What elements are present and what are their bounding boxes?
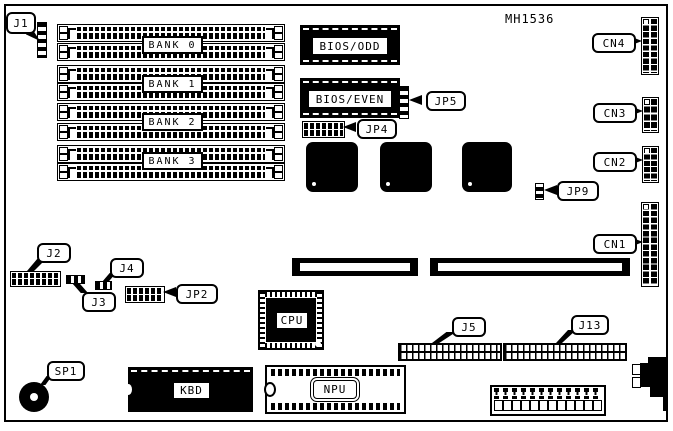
callout-cn4: CN4	[592, 33, 636, 53]
pin1-dot	[468, 182, 472, 186]
cn4-connector	[641, 17, 659, 75]
bios-even-chip: BIOS/EVEN	[300, 78, 400, 118]
cpu-label: CPU	[276, 312, 308, 329]
kbd-label: KBD	[173, 382, 210, 399]
j2-header	[10, 271, 61, 287]
slot-left	[292, 258, 418, 276]
callout-j3: J3	[82, 292, 116, 312]
npu-pins-top	[271, 369, 400, 376]
callout-cn3: CN3	[593, 103, 637, 123]
din-connector-pin	[663, 396, 666, 411]
power-connector	[490, 385, 606, 416]
callout-jp5-label: JP5	[435, 95, 458, 108]
speaker-hole	[30, 393, 38, 401]
callout-sp1: SP1	[47, 361, 85, 381]
callout-jp9-arrow	[544, 185, 557, 195]
callout-jp4-label: JP4	[366, 123, 389, 136]
callout-jp2-arrow	[163, 287, 176, 297]
jp2-header	[125, 286, 165, 303]
pin1-dot	[312, 182, 316, 186]
plcc-chip-2	[380, 142, 432, 192]
motherboard-layout-diagram: MH1536 J1 BANK 0 BANK 1 BANK 2 BANK 3 BI…	[0, 0, 673, 431]
cpu-pin1-dot	[315, 341, 321, 347]
callout-cn4-label: CN4	[603, 37, 626, 50]
callout-j4: J4	[110, 258, 144, 278]
slot-right	[430, 258, 630, 276]
callout-j1: J1	[6, 12, 36, 34]
callout-j13: J13	[571, 315, 609, 335]
part-number: MH1536	[505, 12, 554, 26]
npu-label: NPU	[313, 380, 357, 399]
bios-even-pins-top	[303, 81, 397, 83]
callout-j5-label: J5	[461, 321, 476, 334]
kbd-chip: KBD	[128, 367, 253, 412]
npu-pins-bottom	[271, 403, 400, 410]
j13-header	[503, 343, 627, 361]
pin1-marker	[645, 100, 649, 104]
j3-jumper	[66, 275, 85, 284]
bank2-label: BANK 2	[142, 113, 203, 131]
bios-odd-chip: BIOS/ODD	[300, 25, 400, 65]
callout-j2-label: J2	[46, 247, 61, 260]
jp4-header	[302, 121, 345, 138]
bios-even-label: BIOS/EVEN	[308, 90, 392, 108]
pin1-marker	[644, 205, 648, 209]
bios-odd-label: BIOS/ODD	[312, 37, 388, 55]
npu-socket: NPU	[265, 365, 406, 414]
callout-jp5-arrow	[409, 95, 422, 105]
cn1-connector	[641, 202, 659, 287]
callout-sp1-label: SP1	[55, 365, 78, 378]
cn2-connector	[642, 146, 659, 183]
bank0-label: BANK 0	[142, 36, 203, 54]
kbd-pins-top	[131, 370, 250, 372]
callout-j5: J5	[452, 317, 486, 337]
cn3-connector	[642, 97, 659, 133]
bios-odd-pins-top	[303, 28, 397, 30]
pin1-marker	[644, 20, 648, 24]
plcc-chip-3	[462, 142, 512, 192]
din-tab-1	[632, 364, 641, 375]
plcc-chip-1	[306, 142, 358, 192]
callout-jp9-label: JP9	[567, 185, 590, 198]
callout-j3-label: J3	[91, 296, 106, 309]
pin1-marker	[645, 149, 649, 153]
callout-jp9: JP9	[557, 181, 599, 201]
bios-odd-pins-bottom	[303, 60, 397, 62]
callout-cn3-label: CN3	[604, 107, 627, 120]
jp5-header	[399, 86, 409, 119]
npu-notch	[264, 382, 276, 397]
callout-cn1: CN1	[593, 234, 637, 254]
callout-jp2-label: JP2	[186, 288, 209, 301]
pin1-dot	[386, 182, 390, 186]
callout-cn2: CN2	[593, 152, 637, 172]
din-connector-body	[640, 363, 668, 387]
callout-jp4-arrow	[343, 122, 356, 132]
kbd-notch	[125, 384, 132, 395]
callout-j13-label: J13	[579, 319, 602, 332]
cpu-socket: CPU	[258, 290, 324, 350]
j4-jumper	[95, 281, 112, 290]
bank1-label: BANK 1	[142, 75, 203, 93]
j5-header	[398, 343, 502, 361]
bios-even-pins-bottom	[303, 113, 397, 115]
bank3-label: BANK 3	[142, 152, 203, 170]
callout-jp2: JP2	[176, 284, 218, 304]
din-tab-2	[632, 377, 641, 388]
speaker	[19, 382, 49, 412]
callout-jp4: JP4	[357, 119, 397, 139]
callout-j1-label: J1	[13, 17, 28, 30]
callout-j4-label: J4	[119, 262, 134, 275]
callout-j2: J2	[37, 243, 71, 263]
callout-cn1-label: CN1	[604, 238, 627, 251]
callout-cn2-label: CN2	[604, 156, 627, 169]
jp9-header	[535, 183, 544, 200]
callout-jp5: JP5	[426, 91, 466, 111]
